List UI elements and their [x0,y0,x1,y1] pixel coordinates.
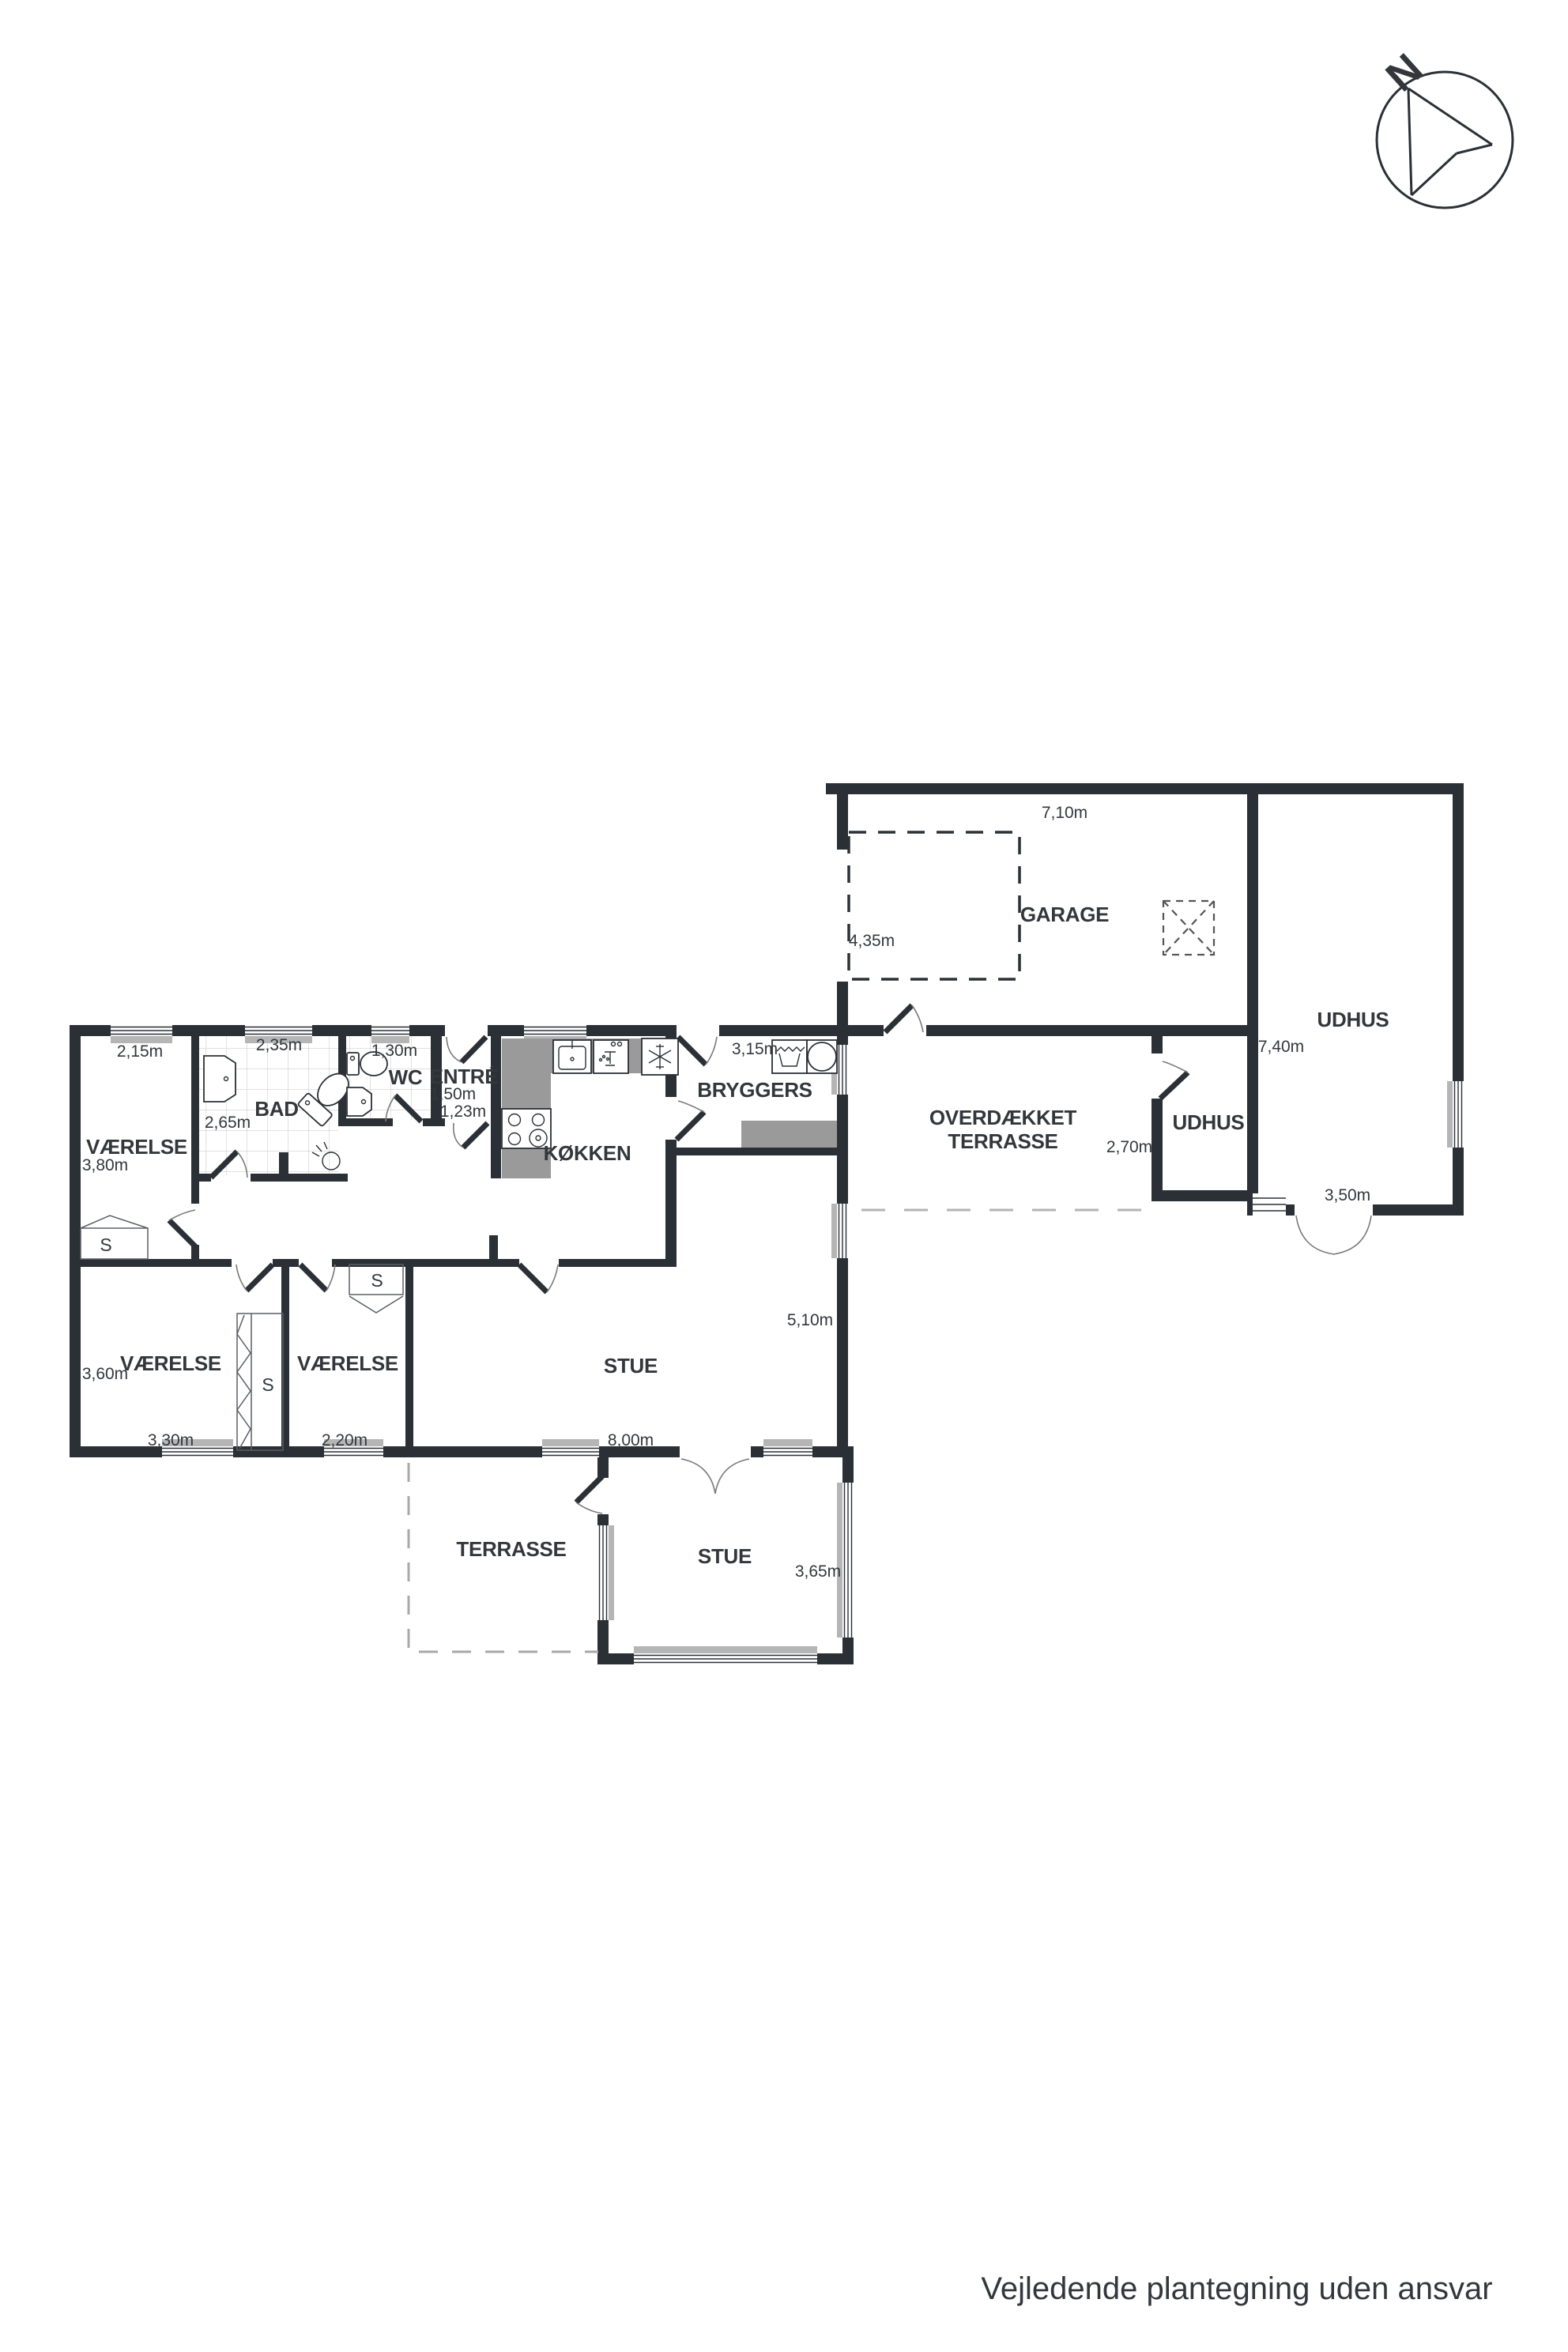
compass-icon [1377,72,1513,208]
kitchen-sink-icon [553,1040,591,1073]
dimension-label-bad-depth: 2,65m [205,1114,251,1133]
window [245,1025,312,1036]
room-label-vaerelse-s: VÆRELSE [297,1352,398,1376]
french-doors [681,1459,749,1494]
dimension-label-garage-width: 7,10m [1042,804,1087,823]
window [524,1025,586,1036]
dimension-label-bryggers-width: 3,15m [732,1040,778,1059]
closet-label-skab-s: S [371,1270,383,1291]
room-label-bad: BAD [254,1098,298,1121]
dimension-label-bad-width: 2,35m [256,1036,302,1055]
dimension-label-udhus-width: 3,50m [1325,1186,1370,1205]
closet-nw [81,1216,148,1259]
window [837,1045,848,1095]
dimension-label-vaer-sw-depth: 3,60m [82,1365,128,1384]
carport-outline [849,832,1020,979]
dimension-label-garage-depth: 4,35m [849,932,895,951]
window [1253,1193,1286,1216]
room-label-vaerelse-sw: VÆRELSE [120,1352,221,1376]
disclaimer-text: Vejledende plantegning uden ansvar [981,2271,1492,2307]
floor-plan-drawing [0,0,1568,2352]
vaerelse-nw-door [169,1210,195,1246]
room-label-udhus-large: UDHUS [1317,1008,1389,1032]
walls [70,783,1464,1664]
dimension-label-vaer-s-width: 2,20m [322,1431,367,1450]
dimension-label-entre-width: 1,50m [430,1085,476,1104]
udhus-double-doors [1296,1216,1371,1254]
dimension-label-vaer-sw-width: 3,30m [148,1431,194,1450]
vaerelse-sw-door [236,1265,273,1291]
garage-hatch-box [1163,901,1214,955]
dishwasher-icon [594,1040,628,1073]
dimension-label-udhus-depth: 7,40m [1258,1038,1304,1057]
window [837,1204,848,1258]
window [542,1446,599,1457]
window [763,1446,812,1457]
floor-plan-page: GARAGEUDHUSOVERDÆKKET TERRASSEUDHUSBRYGG… [0,0,1568,2352]
terrasse-door [576,1476,602,1513]
vaerelse-s-door [300,1265,335,1291]
bryggers-counter [741,1121,837,1149]
dimension-label-wc-width: 1,30m [371,1042,417,1061]
dimension-label-stue-g-width: 3,65m [795,1562,841,1581]
window [634,1653,817,1664]
dimension-label-vaer-nw-width: 2,15m [117,1042,163,1061]
fridge-freezer-icon [642,1038,678,1075]
dashed-outlines [409,832,1214,1652]
wc-sink-icon [347,1087,371,1116]
room-label-bryggers: BRYGGERS [697,1079,812,1102]
room-label-garage: GARAGE [1020,903,1109,927]
bad-sink-icon [204,1056,236,1102]
udhus-small-door [1160,1061,1188,1099]
window [111,1025,172,1036]
dimension-label-udhus-s-width: 2,70m [1106,1138,1152,1157]
stue-door [519,1265,558,1292]
closet-label-skab-mid: S [262,1374,273,1395]
entre-hall-door [454,1123,488,1148]
room-label-udhus-small: UDHUS [1173,1111,1245,1135]
room-label-terrasse: TERRASSE [456,1538,566,1562]
window [371,1025,409,1036]
window [842,1483,854,1638]
closet-mid [237,1314,283,1450]
room-label-overdaekket-terrasse: OVERDÆKKET TERRASSE [929,1106,1076,1154]
closets [81,1216,403,1450]
dimension-label-entre-depth: 1,23m [440,1102,486,1121]
koekken-bryggers-door [677,1101,704,1140]
dimension-label-stue-depth: 5,10m [787,1311,833,1330]
bryggers-back-door [678,1037,717,1065]
front-door [447,1037,486,1062]
dimension-label-stue-width: 8,00m [608,1431,654,1450]
window [597,1525,609,1620]
closet-label-skab-nw: S [100,1234,111,1255]
room-label-koekken: KØKKEN [544,1142,631,1166]
room-label-wc: WC [389,1066,423,1090]
room-label-stue-garden: STUE [698,1545,752,1569]
dimension-label-vaer-nw-depth: 3,80m [82,1156,128,1175]
washing-machine-icon [807,1040,837,1073]
room-label-stue: STUE [604,1355,658,1378]
window [1453,1081,1464,1148]
garage-door [885,1005,923,1032]
